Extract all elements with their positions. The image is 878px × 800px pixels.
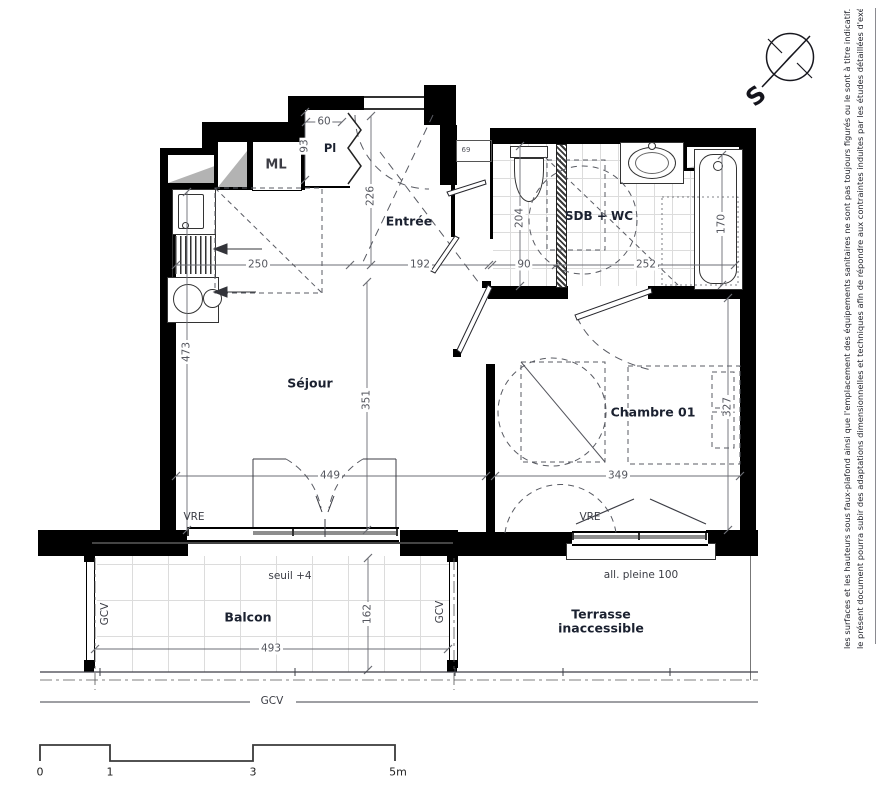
bedroom-window-clearance-arc xyxy=(505,484,616,533)
dim-closet-width: 60 xyxy=(315,116,332,127)
bathtub-access-zone xyxy=(662,197,738,285)
rail-label-left: GCV xyxy=(99,603,111,626)
scale-label-5m: 5m xyxy=(389,766,407,779)
dim-bathtub-length: 170 xyxy=(716,212,727,236)
dim-bedroom-depth: 327 xyxy=(722,395,733,419)
bedroom-square-diagonal xyxy=(521,362,605,462)
living-window-swing-right xyxy=(329,459,363,508)
disclaimer-line-1: le présent document pourra subir des ada… xyxy=(854,9,867,649)
door-leaf-hall-living xyxy=(457,285,492,353)
dim-bathroom-width: 252 xyxy=(634,259,658,270)
rail-label-bottom: GCV xyxy=(258,695,287,707)
scale-label-3: 3 xyxy=(250,766,257,779)
turning-circle-bedroom xyxy=(498,358,606,466)
dim-wc-zone-width: 90 xyxy=(515,259,532,270)
room-label-closet: Pl xyxy=(324,141,336,155)
room-label-terrace-1: Terrasse xyxy=(571,607,630,622)
sill-label: all. pleine 100 xyxy=(604,569,678,581)
dim-entry-door-width: 69 xyxy=(462,146,471,154)
room-label-bedroom: Chambre 01 xyxy=(611,405,696,420)
dim-living-inner-depth: 351 xyxy=(361,388,372,412)
disclaimer-line-2: les surfaces et les hauteurs sous faux-p… xyxy=(841,9,854,649)
dim-living-total-depth: 473 xyxy=(181,340,192,364)
dashed-furniture xyxy=(215,157,740,533)
plan-linework xyxy=(0,0,878,800)
compass-icon xyxy=(762,34,814,88)
entry-door-swing-arc xyxy=(355,115,429,189)
dim-entry-width: 192 xyxy=(408,259,432,270)
room-label-terrace-2: inaccessible xyxy=(558,621,644,636)
dim-balcony-width: 493 xyxy=(259,643,283,654)
scale-bar xyxy=(40,745,395,761)
scale-label-0: 0 xyxy=(37,766,44,779)
dim-bedroom-width: 349 xyxy=(606,470,630,481)
room-label-entree: Entrée xyxy=(386,214,433,229)
door-leaf-entry-b xyxy=(431,236,459,273)
door-leaf-entry-a xyxy=(447,180,486,196)
dimension-ticks xyxy=(91,108,744,674)
scale-label-1: 1 xyxy=(107,766,114,779)
door-leaf-bedroom xyxy=(575,288,652,320)
door-leaves xyxy=(431,180,652,353)
dim-bathroom-depth: 204 xyxy=(514,206,525,230)
dimension-lines xyxy=(91,108,744,674)
room-label-bathroom: SDB + WC xyxy=(565,209,633,223)
closet-folding-door xyxy=(348,113,361,184)
room-label-balcony: Balcon xyxy=(224,610,271,625)
rail-label-right: GCV xyxy=(434,601,446,624)
dim-balcony-depth: 162 xyxy=(362,602,373,626)
dim-closet-depth: 93 xyxy=(299,137,310,154)
floor-plan-canvas: Séjour Entrée Pl ML SDB + WC Chambre 01 … xyxy=(0,0,878,800)
room-label-sejour: Séjour xyxy=(287,376,332,391)
dim-entry-depth: 226 xyxy=(365,184,376,208)
window-type-label-left: VRE xyxy=(183,511,204,523)
living-window-v-marks xyxy=(316,496,334,537)
room-label-washing-machine: ML xyxy=(265,158,286,173)
legal-disclaimer-text: les surfaces et les hauteurs sous faux-p… xyxy=(841,9,869,649)
dim-kitchen-width: 250 xyxy=(246,259,270,270)
living-window-swing-left xyxy=(286,459,321,508)
window-type-label-right: VRE xyxy=(579,511,600,523)
threshold-label: seuil +4 xyxy=(268,570,311,582)
kitchen-worktop-dashed xyxy=(215,188,322,293)
dim-living-width: 449 xyxy=(318,470,342,481)
